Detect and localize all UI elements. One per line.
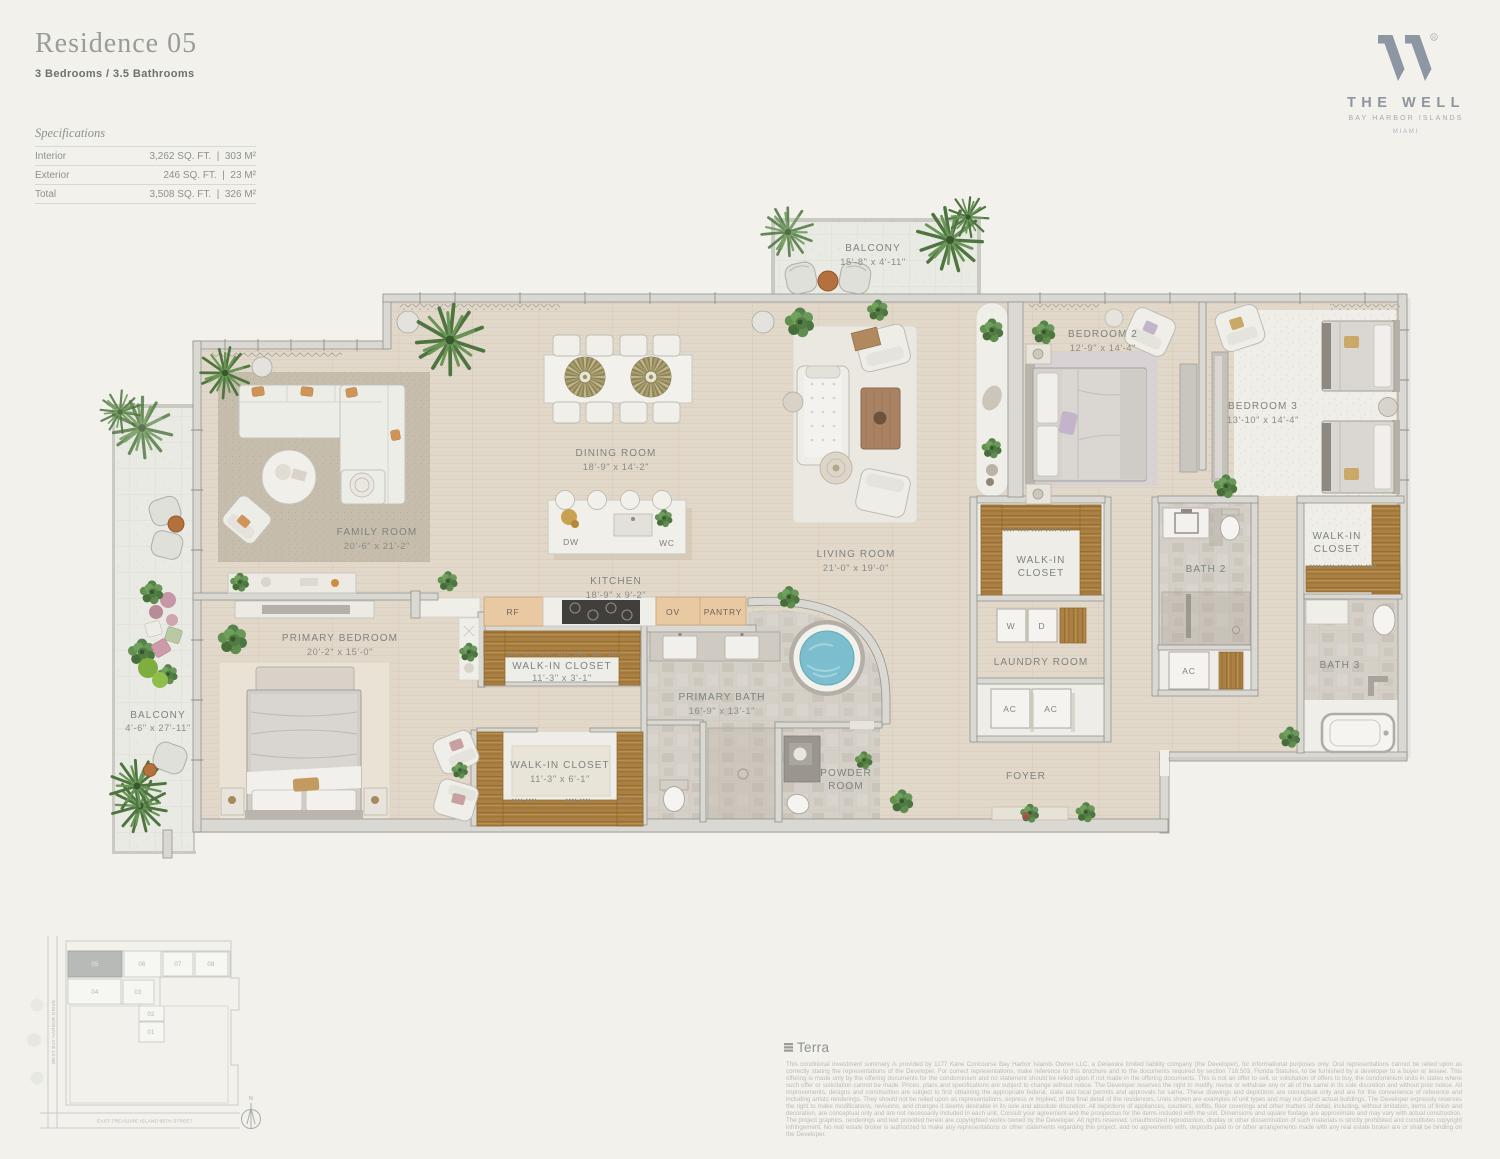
svg-text:WALK-IN CLOSET: WALK-IN CLOSET (510, 760, 610, 771)
svg-text:BATH 3: BATH 3 (1320, 660, 1361, 671)
svg-text:EAST TREASURE ISLAND 95TH STRE: EAST TREASURE ISLAND 95TH STREET (97, 1119, 193, 1124)
svg-text:MIAMI: MIAMI (1393, 129, 1419, 135)
svg-text:18'-9" x 9'-2": 18'-9" x 9'-2" (586, 590, 646, 600)
svg-text:13'-10" x 14'-4": 13'-10" x 14'-4" (1227, 415, 1299, 425)
svg-text:4'-6" x 27'-11": 4'-6" x 27'-11" (125, 723, 191, 733)
svg-text:KITCHEN: KITCHEN (590, 576, 642, 587)
svg-text:DINING ROOM: DINING ROOM (576, 448, 657, 459)
svg-text:BEDROOM 2: BEDROOM 2 (1068, 329, 1138, 340)
svg-text:PANTRY: PANTRY (704, 607, 743, 617)
svg-text:WEST BAY HARBOR DRIVE: WEST BAY HARBOR DRIVE (51, 1000, 56, 1065)
svg-text:02: 02 (147, 1012, 155, 1018)
svg-text:FAMILY ROOM: FAMILY ROOM (337, 527, 418, 538)
svg-text:03: 03 (134, 990, 142, 996)
svg-text:05: 05 (91, 962, 99, 968)
svg-text:04: 04 (91, 990, 99, 996)
svg-text:W: W (1007, 621, 1016, 631)
svg-text:BALCONY: BALCONY (130, 710, 186, 721)
svg-text:ROOM: ROOM (828, 781, 864, 792)
svg-text:WALK-IN: WALK-IN (1017, 555, 1066, 566)
svg-text:PRIMARY BATH: PRIMARY BATH (678, 692, 765, 703)
svg-text:AC: AC (1044, 704, 1057, 714)
svg-text:PRIMARY BEDROOM: PRIMARY BEDROOM (282, 633, 398, 644)
svg-text:AC: AC (1003, 704, 1016, 714)
svg-text:R: R (1432, 35, 1436, 41)
svg-text:FOYER: FOYER (1006, 771, 1046, 782)
svg-text:06: 06 (138, 962, 146, 968)
svg-text:AC: AC (1182, 666, 1195, 676)
svg-text:11'-3" x 6'-1": 11'-3" x 6'-1" (530, 774, 590, 784)
svg-text:07: 07 (174, 962, 182, 968)
svg-text:BALCONY: BALCONY (845, 243, 901, 254)
svg-text:LIVING ROOM: LIVING ROOM (817, 549, 896, 560)
svg-text:CLOSET: CLOSET (1314, 544, 1361, 555)
svg-text:WALK-IN: WALK-IN (1313, 531, 1362, 542)
svg-text:LAUNDRY ROOM: LAUNDRY ROOM (994, 657, 1089, 668)
svg-text:16'-9" x 13'-1": 16'-9" x 13'-1" (689, 706, 755, 716)
svg-text:THE WELL: THE WELL (1347, 95, 1465, 111)
svg-text:OV: OV (666, 607, 680, 617)
svg-text:BEDROOM 3: BEDROOM 3 (1228, 401, 1298, 412)
svg-text:D: D (1039, 621, 1046, 631)
svg-text:POWDER: POWDER (820, 768, 872, 779)
svg-text:N: N (249, 1096, 253, 1102)
svg-text:21'-0" x 19'-0": 21'-0" x 19'-0" (823, 563, 889, 573)
svg-text:18'-9" x 14'-2": 18'-9" x 14'-2" (583, 462, 649, 472)
svg-text:CLOSET: CLOSET (1018, 568, 1065, 579)
svg-text:WALK-IN CLOSET: WALK-IN CLOSET (512, 661, 612, 672)
svg-text:RF: RF (507, 607, 520, 617)
svg-text:12'-9" x 14'-4": 12'-9" x 14'-4" (1070, 343, 1136, 353)
svg-text:BAY HARBOR ISLANDS: BAY HARBOR ISLANDS (1349, 115, 1464, 122)
svg-text:20'-6" x 21'-2": 20'-6" x 21'-2" (344, 541, 410, 551)
svg-text:WC: WC (659, 538, 675, 548)
svg-text:DW: DW (563, 537, 579, 547)
svg-text:20'-2" x 15'-0": 20'-2" x 15'-0" (307, 647, 373, 657)
svg-text:11'-3" x 3'-1": 11'-3" x 3'-1" (532, 673, 592, 683)
svg-text:08: 08 (207, 962, 215, 968)
svg-text:15'-8" x 4'-11": 15'-8" x 4'-11" (840, 257, 906, 267)
svg-text:BATH 2: BATH 2 (1186, 564, 1227, 575)
svg-text:01: 01 (147, 1030, 155, 1036)
